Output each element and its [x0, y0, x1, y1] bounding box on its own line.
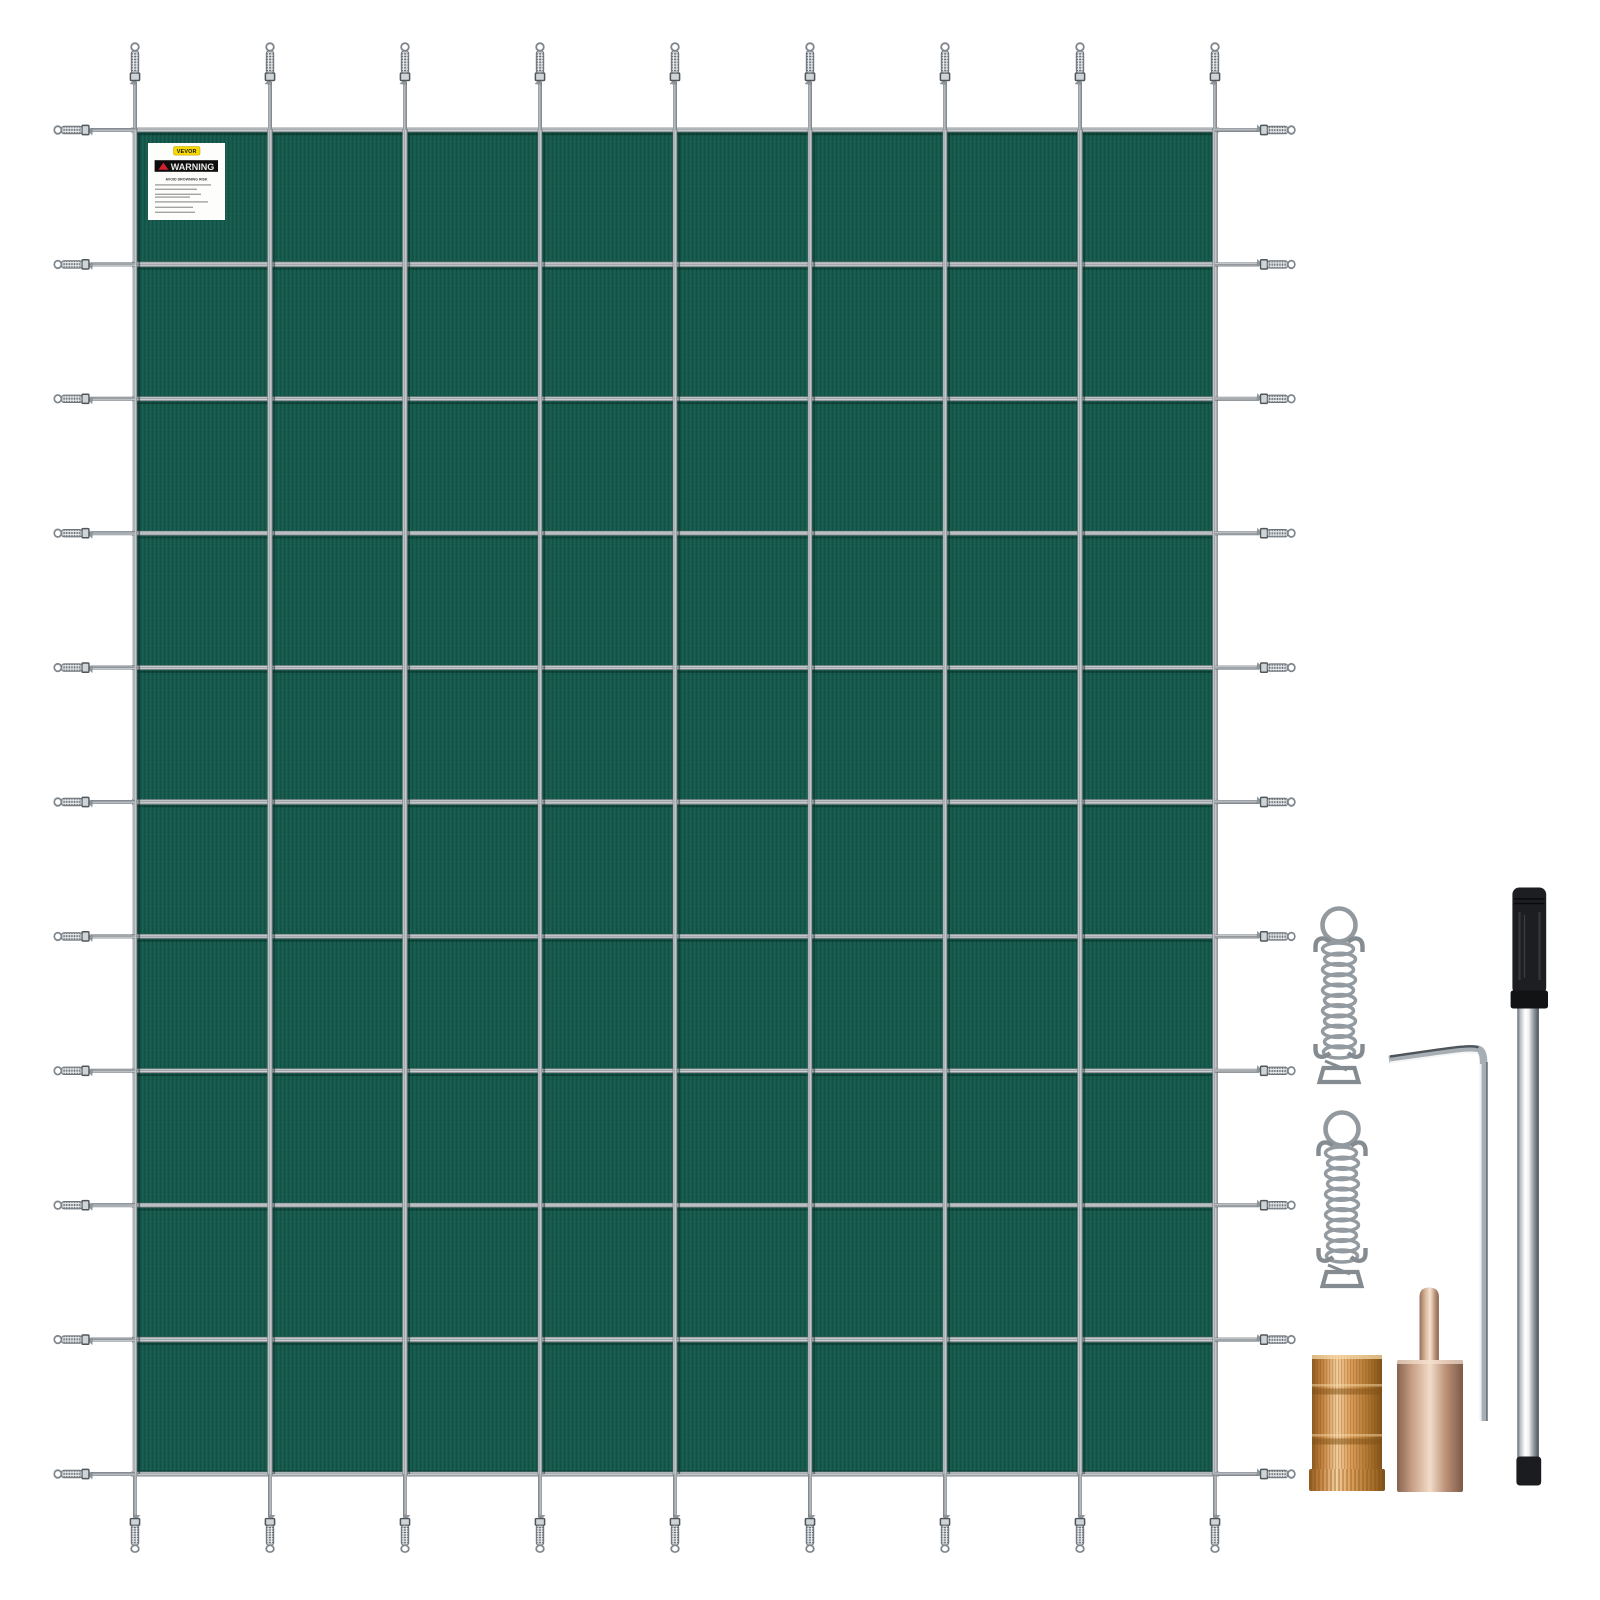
svg-text:WARNING: WARNING [171, 162, 215, 172]
svg-text:AVOID DROWNING RISK: AVOID DROWNING RISK [165, 177, 207, 181]
svg-text:VEVOR: VEVOR [177, 149, 197, 155]
